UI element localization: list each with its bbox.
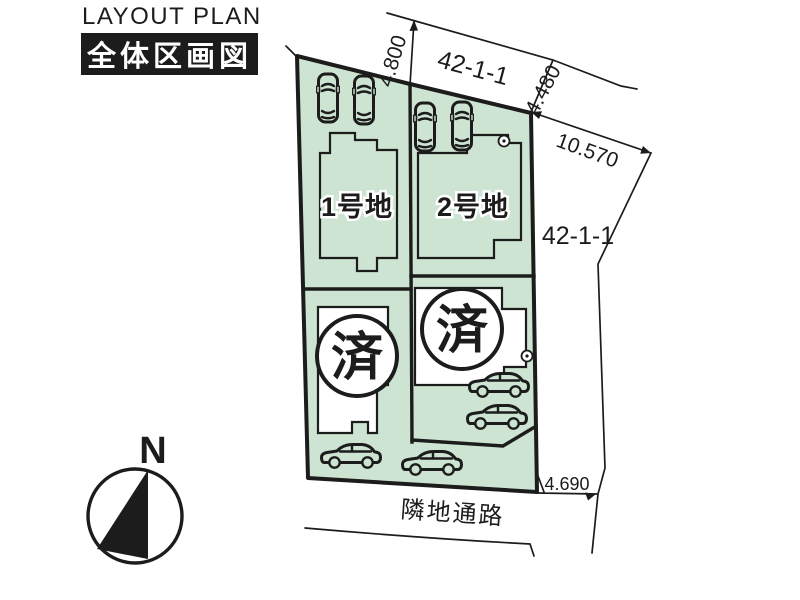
layout-plan-page: LAYOUT PLAN 全体区画図: [0, 0, 800, 600]
car-top-icon: [414, 103, 437, 151]
lot-divider-vertical: [410, 84, 412, 442]
car-top-icon: [317, 74, 340, 122]
parcel-number-east: 42-1-1: [542, 222, 614, 250]
dimension-frontage-east: 4.480: [521, 61, 566, 118]
south-road-line: [305, 528, 534, 556]
north-road-line: [387, 13, 637, 89]
sold-mark-lot3-text: 済: [331, 329, 384, 387]
compass: N: [88, 430, 182, 563]
lot-2-label: 2号地: [437, 192, 509, 222]
parcel-number-top: 42-1-1: [435, 45, 512, 91]
east-neighbour-boundary: [592, 153, 651, 553]
sold-mark-lot4: 済: [422, 289, 502, 369]
west-boundary-extension-line: [286, 46, 298, 58]
dimension-side-northeast: 10.570: [553, 129, 621, 173]
boundary-pin-icon: [522, 351, 533, 362]
sold-mark-lot4-text: 済: [436, 302, 489, 360]
site-plan-drawing: 1号地 2号地 済 済 4.800 42-1-1 4.480 10.570 42…: [0, 0, 800, 600]
arrowhead-icon: [640, 146, 651, 154]
compass-north-label: N: [139, 430, 166, 472]
lot-1-label: 1号地: [321, 192, 393, 222]
dimension-rear-south: 4.690: [544, 474, 589, 494]
car-top-icon: [353, 76, 376, 124]
car-top-icon: [451, 102, 474, 150]
boundary-pin-icon: [499, 136, 510, 147]
sold-mark-lot3: 済: [317, 316, 397, 396]
adjacent-passage-label: 隣地通路: [400, 496, 506, 530]
